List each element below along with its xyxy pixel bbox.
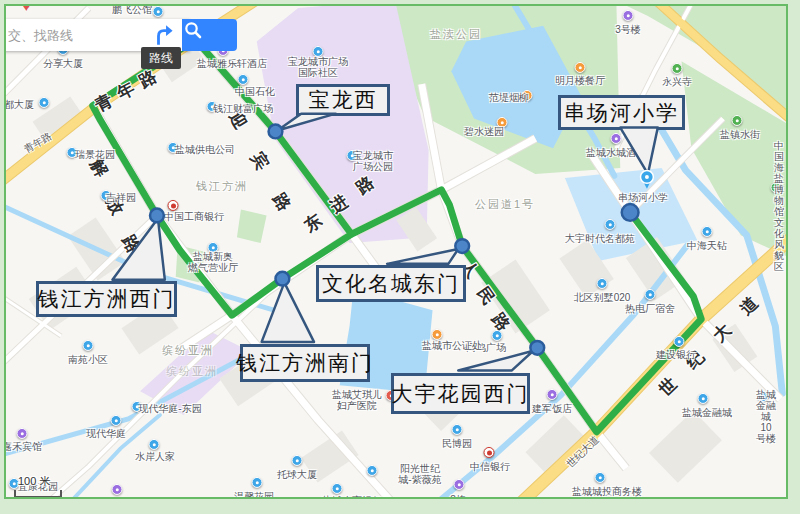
- scale-line: [14, 490, 62, 498]
- map-viewport[interactable]: 钱江方洲缤纷亚洲缤纷亚洲公园道1号盐渎公园沁雅居小区青年路解放路迎宾路东进路人民…: [4, 4, 788, 499]
- route-tooltip: 路线: [141, 47, 181, 69]
- stop-callout: 宝龙西: [296, 84, 390, 116]
- scale-label: 100 米: [18, 474, 62, 489]
- callout-layer: 宝龙西串场河小学钱江方洲西门文化名城东门钱江方洲南门大宇花园西门: [6, 6, 786, 497]
- stop-callout: 大宇花园西门: [391, 373, 530, 414]
- search-button[interactable]: [182, 19, 237, 51]
- search-input[interactable]: [4, 19, 148, 51]
- stop-callout: 串场河小学: [558, 95, 685, 130]
- screenshot-frame: 钱江方洲缤纷亚洲缤纷亚洲公园道1号盐渎公园沁雅居小区青年路解放路迎宾路东进路人民…: [0, 0, 800, 514]
- stop-callout: 文化名城东门: [316, 265, 466, 302]
- stop-callout: 钱江方洲南门: [240, 344, 370, 382]
- route-button[interactable]: [152, 22, 180, 48]
- stop-callout: 钱江方洲西门: [36, 281, 177, 317]
- map-scale-bar: 100 米: [14, 474, 62, 498]
